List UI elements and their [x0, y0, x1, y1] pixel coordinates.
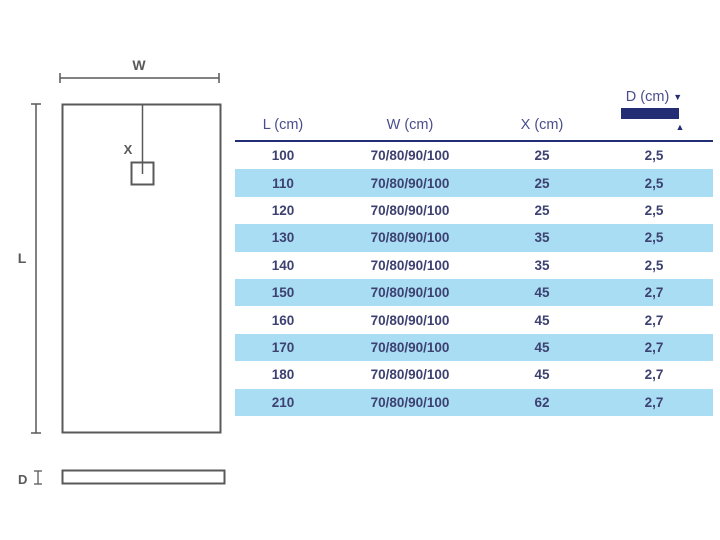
table-cell-x: 25 [489, 176, 595, 191]
table-row: 16070/80/90/100452,7 [235, 306, 713, 333]
drain-dimension-label: X [124, 142, 133, 157]
table-cell-l: 160 [235, 313, 331, 328]
table-cell-d: 2,7 [595, 340, 713, 355]
table-cell-x: 25 [489, 148, 595, 163]
depth-arrow-down-icon: ▼ [673, 93, 682, 102]
depth-tick-icon [34, 471, 42, 484]
table-cell-x: 62 [489, 395, 595, 410]
table-row: 12070/80/90/100252,5 [235, 197, 713, 224]
table-row: 13070/80/90/100352,5 [235, 224, 713, 251]
tray-side-view-outline [63, 471, 225, 484]
table-cell-x: 45 [489, 313, 595, 328]
table-cell-l: 140 [235, 258, 331, 273]
length-dimension-line [31, 104, 41, 433]
table-cell-x: 45 [489, 367, 595, 382]
table-cell-l: 110 [235, 176, 331, 191]
table-cell-x: 45 [489, 340, 595, 355]
table-row: 10070/80/90/100252,5 [235, 142, 713, 169]
table-cell-w: 70/80/90/100 [331, 176, 489, 191]
table-row: 14070/80/90/100352,5 [235, 252, 713, 279]
table-cell-d: 2,5 [595, 176, 713, 191]
spec-sheet: W X L D L (cm) W (cm) X (cm [0, 0, 720, 540]
table-cell-w: 70/80/90/100 [331, 340, 489, 355]
table-header-l: L (cm) [235, 117, 331, 140]
depth-arrow-up-icon: ▲ [676, 123, 685, 132]
table-cell-w: 70/80/90/100 [331, 285, 489, 300]
dimension-table: L (cm) W (cm) X (cm) D (cm) ▼ ▲ 10070/80… [235, 85, 713, 416]
tray-diagram: W X L D [0, 0, 235, 540]
table-cell-x: 35 [489, 258, 595, 273]
table-cell-l: 180 [235, 367, 331, 382]
depth-bar [621, 108, 679, 119]
table-cell-w: 70/80/90/100 [331, 148, 489, 163]
table-cell-d: 2,7 [595, 285, 713, 300]
table-header-d-label: D (cm) [626, 89, 670, 105]
table-cell-w: 70/80/90/100 [331, 395, 489, 410]
table-cell-d: 2,5 [595, 203, 713, 218]
tray-top-view-outline [63, 105, 221, 433]
table-cell-l: 120 [235, 203, 331, 218]
width-dimension-line [60, 73, 219, 83]
table-row: 15070/80/90/100452,7 [235, 279, 713, 306]
table-header-w: W (cm) [331, 117, 489, 140]
table-cell-d: 2,5 [595, 148, 713, 163]
table-cell-l: 100 [235, 148, 331, 163]
table-cell-x: 45 [489, 285, 595, 300]
spec-table-body: 10070/80/90/100252,511070/80/90/100252,5… [235, 142, 713, 416]
table-cell-d: 2,5 [595, 258, 713, 273]
length-dimension-label: L [18, 250, 27, 266]
table-cell-d: 2,5 [595, 230, 713, 245]
table-cell-x: 25 [489, 203, 595, 218]
table-cell-d: 2,7 [595, 395, 713, 410]
table-cell-w: 70/80/90/100 [331, 367, 489, 382]
depth-dimension-label: D [18, 472, 27, 487]
table-cell-w: 70/80/90/100 [331, 258, 489, 273]
table-header-d: D (cm) ▼ ▲ [595, 83, 713, 140]
table-header-row: L (cm) W (cm) X (cm) D (cm) ▼ ▲ [235, 85, 713, 142]
table-row: 21070/80/90/100622,7 [235, 389, 713, 416]
table-cell-x: 35 [489, 230, 595, 245]
table-cell-l: 210 [235, 395, 331, 410]
table-cell-w: 70/80/90/100 [331, 313, 489, 328]
table-cell-w: 70/80/90/100 [331, 203, 489, 218]
table-row: 17070/80/90/100452,7 [235, 334, 713, 361]
table-row: 11070/80/90/100252,5 [235, 169, 713, 196]
width-dimension-label: W [132, 57, 146, 73]
table-cell-l: 150 [235, 285, 331, 300]
table-header-x: X (cm) [489, 117, 595, 140]
table-cell-d: 2,7 [595, 367, 713, 382]
table-cell-l: 170 [235, 340, 331, 355]
table-row: 18070/80/90/100452,7 [235, 361, 713, 388]
table-cell-d: 2,7 [595, 313, 713, 328]
table-cell-l: 130 [235, 230, 331, 245]
table-cell-w: 70/80/90/100 [331, 230, 489, 245]
